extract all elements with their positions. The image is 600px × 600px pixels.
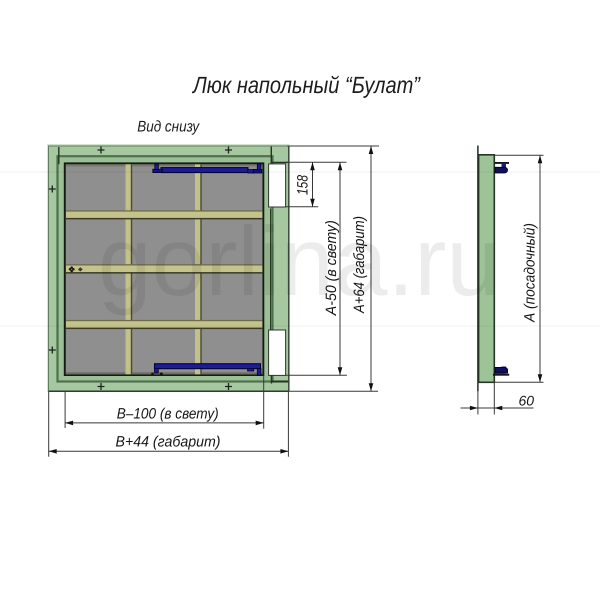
svg-text:В–100 (в свету): В–100 (в свету) [117, 405, 219, 422]
svg-text:В+44 (габарит): В+44 (габарит) [116, 434, 221, 451]
svg-text:А (посадочный): А (посадочный) [522, 223, 539, 323]
svg-text:Вид снизу: Вид снизу [137, 118, 200, 135]
svg-text:gorlina.ru: gorlina.ru [98, 206, 500, 316]
svg-text:Люк напольный “Булат”: Люк напольный “Булат” [191, 72, 421, 98]
svg-text:60: 60 [519, 393, 535, 409]
svg-text:158: 158 [294, 174, 311, 195]
